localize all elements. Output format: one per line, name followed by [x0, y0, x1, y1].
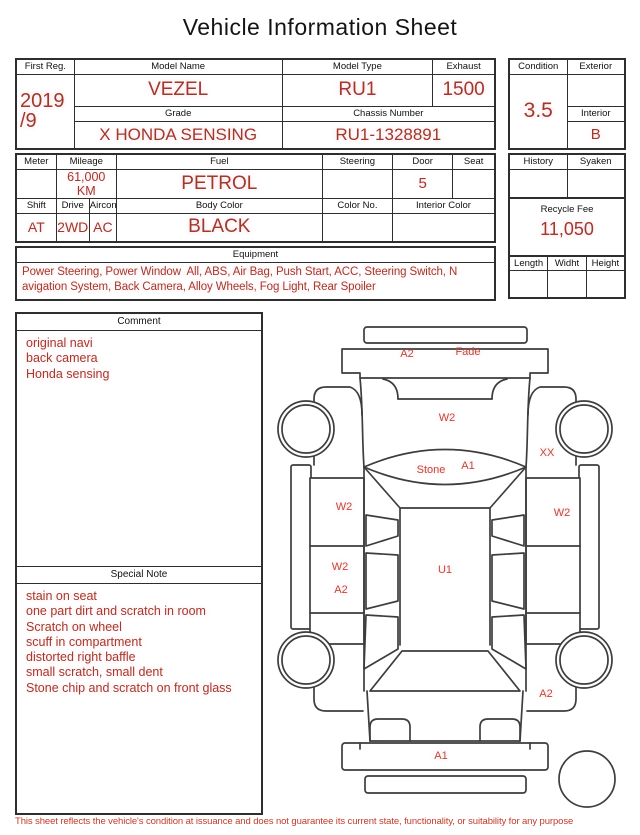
special-note-line: stain on seat — [26, 589, 252, 604]
fuel-label: Fuel — [116, 154, 322, 169]
interior-color-value — [393, 213, 495, 242]
grade-value: X HONDA SENSING — [74, 121, 282, 149]
grade-label: Grade — [74, 106, 282, 121]
first-reg-value: 2019 /9 — [16, 74, 74, 149]
history-panel: History Syaken Recycle Fee 11,050 Length… — [508, 153, 626, 299]
dimensions-table: Length Widht Height — [508, 255, 626, 299]
disclaimer-text: This sheet reflects the vehicle's condit… — [15, 816, 635, 827]
model-type-label: Model Type — [282, 59, 433, 74]
special-note-content: stain on seat one part dirt and scratch … — [17, 584, 261, 813]
first-reg-year: 2019 — [20, 91, 74, 111]
aircon-value: AC — [89, 213, 116, 242]
equipment-list: Power Steering, Power Window All, ABS, A… — [17, 263, 494, 299]
damage-label-a2-left-rear-door: A2 — [334, 584, 347, 596]
damage-label-a1-rear-bumper: A1 — [434, 750, 447, 762]
rear-bumper-strip — [365, 776, 526, 793]
history-label: History — [509, 154, 567, 169]
drive-value: 2WD — [56, 213, 89, 242]
interior-color-label: Interior Color — [393, 198, 495, 213]
comment-label: Comment — [17, 314, 261, 331]
chassis-number-label: Chassis Number — [282, 106, 495, 121]
vehicle-information-sheet: Vehicle Information Sheet First Reg. Mod… — [0, 0, 640, 835]
length-label: Length — [509, 256, 548, 270]
history-table: History Syaken — [508, 153, 626, 199]
right-rear-window — [492, 553, 524, 609]
condition-table: Condition Exterior 3.5 Interior B — [508, 58, 626, 150]
right-rear-wheel — [556, 632, 612, 688]
recycle-fee-label: Recycle Fee — [510, 204, 624, 215]
exhaust-label: Exhaust — [433, 59, 495, 74]
door-label: Door — [393, 154, 453, 169]
meter-label: Meter — [16, 154, 56, 169]
history-value — [509, 169, 567, 198]
damage-label-u1-roof: U1 — [438, 564, 452, 576]
length-value — [509, 270, 548, 298]
syaken-label: Syaken — [567, 154, 625, 169]
aircon-label: Aircon — [89, 198, 116, 213]
damage-label-w2-left-front-door: W2 — [336, 501, 353, 513]
comment-line: back camera — [26, 351, 252, 366]
car-diagram-svg — [270, 315, 640, 815]
steering-value — [322, 169, 392, 198]
right-quarter-window — [492, 615, 526, 669]
body-color-value: BLACK — [116, 213, 322, 242]
meter-value — [16, 169, 56, 198]
left-front-window — [366, 515, 398, 546]
left-rear-window — [366, 553, 398, 609]
seat-label: Seat — [453, 154, 495, 169]
hood-left-edge — [360, 378, 364, 467]
model-type-value: RU1 — [282, 74, 433, 106]
damage-label-a1-windshield: A1 — [461, 460, 474, 472]
recycle-fee-box: Recycle Fee 11,050 — [508, 197, 626, 257]
comment-special-note-box: Comment original navi back camera Honda … — [15, 312, 263, 815]
equipment-box: Equipment Power Steering, Power Window A… — [15, 246, 496, 301]
comment-line: Honda sensing — [26, 367, 252, 382]
front-bumper — [342, 349, 548, 378]
condition-score: 3.5 — [509, 74, 567, 149]
specs-table: Meter Mileage Fuel Steering Door Seat 61… — [15, 153, 496, 243]
color-no-label: Color No. — [322, 198, 392, 213]
equipment-label: Equipment — [17, 248, 494, 263]
damage-label-w2-left-rear-door: W2 — [332, 561, 349, 573]
model-name-value: VEZEL — [74, 74, 282, 106]
color-no-value — [322, 213, 392, 242]
seat-value — [453, 169, 495, 198]
shift-label: Shift — [16, 198, 56, 213]
condition-label: Condition — [509, 59, 567, 74]
damage-label-fade-front-bumper: Fade — [455, 346, 480, 358]
front-bumper-strip — [364, 327, 527, 343]
steering-label: Steering — [322, 154, 392, 169]
damage-label-xx-right-fender: XX — [540, 447, 555, 459]
chassis-number-value: RU1-1328891 — [282, 121, 495, 149]
left-rocker-panel — [291, 465, 311, 629]
car-damage-diagram: A2 Fade W2 Stone A1 XX W2 W2 W2 A2 U1 A2… — [270, 315, 640, 815]
right-rocker-panel — [579, 465, 599, 629]
damage-label-w2-hood: W2 — [439, 412, 456, 424]
interior-label: Interior — [567, 106, 625, 121]
hood-right-edge — [526, 378, 530, 467]
first-reg-month: /9 — [20, 111, 74, 131]
first-reg-label: First Reg. — [16, 59, 74, 74]
special-note-line: small scratch, small dent — [26, 665, 252, 680]
door-value: 5 — [393, 169, 453, 198]
model-name-label: Model Name — [74, 59, 282, 74]
special-note-line: one part dirt and scratch in room — [26, 604, 252, 619]
special-note-line: Scratch on wheel — [26, 620, 252, 635]
interior-grade: B — [567, 121, 625, 149]
left-rear-wheel — [278, 632, 334, 688]
rear-window — [370, 651, 520, 691]
exterior-grade — [567, 74, 625, 106]
drive-label: Drive — [56, 198, 89, 213]
special-note-line: Stone chip and scratch on front glass — [26, 681, 252, 696]
mileage-value: 61,000 KM — [56, 169, 116, 198]
right-front-window — [492, 515, 524, 546]
page-title: Vehicle Information Sheet — [0, 14, 640, 41]
exterior-label: Exterior — [567, 59, 625, 74]
comment-content: original navi back camera Honda sensing — [17, 331, 261, 566]
height-value — [586, 270, 625, 298]
fuel-value: PETROL — [116, 169, 322, 198]
equipment-line: avigation System, Back Camera, Alloy Whe… — [22, 280, 489, 295]
left-quarter-window — [364, 615, 398, 669]
damage-label-a2-right-quarter: A2 — [539, 688, 552, 700]
equipment-line: Power Steering, Power Window All, ABS, A… — [22, 265, 489, 280]
recycle-fee-value: 11,050 — [510, 219, 624, 240]
comment-line: original navi — [26, 336, 252, 351]
spare-tire — [559, 751, 615, 807]
damage-label-w2-right-front-door: W2 — [554, 507, 571, 519]
shift-value: AT — [16, 213, 56, 242]
right-door-panels — [526, 478, 580, 644]
damage-label-stone-windshield: Stone — [417, 464, 446, 476]
special-note-line: scuff in compartment — [26, 635, 252, 650]
special-note-line: distorted right baffle — [26, 650, 252, 665]
exhaust-value: 1500 — [433, 74, 495, 106]
registration-table: First Reg. Model Name Model Type Exhaust… — [15, 58, 496, 150]
special-note-label: Special Note — [17, 566, 261, 584]
height-label: Height — [586, 256, 625, 270]
mileage-label: Mileage — [56, 154, 116, 169]
damage-label-a2-front-bumper: A2 — [400, 348, 413, 360]
left-front-wheel — [278, 401, 334, 457]
body-color-label: Body Color — [116, 198, 322, 213]
syaken-value — [567, 169, 625, 198]
right-front-wheel — [556, 401, 612, 457]
width-label: Widht — [548, 256, 587, 270]
width-value — [548, 270, 587, 298]
